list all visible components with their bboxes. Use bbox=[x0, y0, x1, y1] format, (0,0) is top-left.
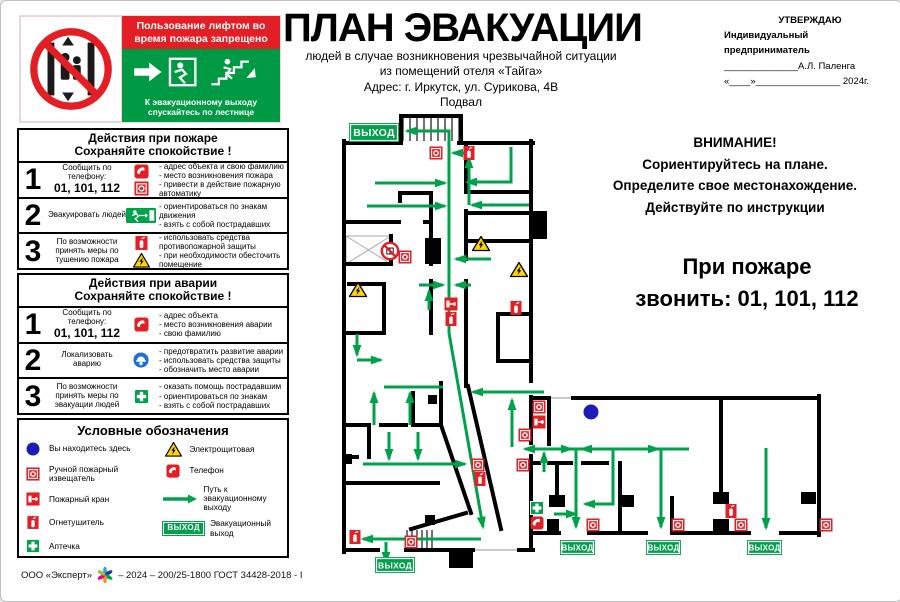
legend-label: Электрощитовая bbox=[189, 445, 254, 454]
step-label: По возможности принять меры по тушению п… bbox=[55, 237, 118, 264]
approve-signature: ______________А.Л. Паленга bbox=[724, 59, 896, 74]
exit-route-pictogram bbox=[126, 56, 276, 88]
legend-label: Телефон bbox=[189, 466, 223, 475]
you-are-here-icon bbox=[23, 442, 43, 456]
bullet: - ориентироваться по знакам движения bbox=[159, 202, 285, 220]
elevator-ban-text: Пользование лифтом во время пожара запре… bbox=[122, 16, 280, 49]
fire-hose-icon bbox=[533, 416, 546, 429]
bullet: - привести в действие пожарную автоматик… bbox=[159, 180, 285, 198]
no-elevator-sign: Пользование лифтом во время пожара запре… bbox=[19, 15, 281, 123]
svg-text:ВЫХОД: ВЫХОД bbox=[378, 561, 412, 571]
no-elevator-icon bbox=[382, 243, 398, 259]
legend-label: Пожарный кран bbox=[49, 495, 109, 504]
fire-alarm-icon bbox=[399, 251, 412, 264]
legend-item-you-are-here: Вы находитесь здесь bbox=[23, 442, 163, 456]
accident-step-3: 3 По возможности принять меры по эвакуац… bbox=[19, 379, 287, 413]
bullet: - место возникновения аварии bbox=[159, 320, 285, 329]
expert-logo-icon bbox=[97, 567, 113, 583]
bullet: - свою фамилию bbox=[159, 329, 285, 338]
exit-badge: ВЫХОД bbox=[560, 540, 595, 555]
accident-step-1: 1 Сообщить по телефону: 01, 101, 112 - а… bbox=[19, 308, 287, 344]
fire-alarm-icon bbox=[430, 147, 443, 160]
accident-panel-title: Действия при аварии bbox=[19, 277, 287, 290]
attention-line-2: Сориентируйтесь на плане. bbox=[579, 154, 891, 176]
attention-block: ВНИМАНИЕ! Сориентируйтесь на плане. Опре… bbox=[579, 132, 891, 218]
fire-alarm-icon bbox=[405, 536, 418, 549]
first-aid-icon bbox=[531, 502, 544, 515]
step-label: По возможности принять меры по эвакуации… bbox=[55, 382, 119, 409]
legend-item-route: Путь к эвакуационному выходу bbox=[163, 485, 283, 512]
step-number: 1 bbox=[19, 166, 47, 193]
fire-alarm-icon bbox=[134, 181, 149, 196]
electric-warning-icon bbox=[163, 442, 183, 457]
approve-date: «____»________________ 2024г. bbox=[724, 74, 896, 89]
bullet: - при необходимости обесточить помещение bbox=[159, 251, 285, 269]
step-label: Сообщить по телефону: bbox=[62, 163, 111, 181]
extinguisher-icon bbox=[475, 472, 486, 486]
phone-icon bbox=[163, 464, 183, 478]
legend-item-first-aid: Аптечка bbox=[23, 539, 163, 553]
bullet: - использовать средства противопожарной … bbox=[159, 233, 285, 251]
fire-hose-icon bbox=[23, 492, 43, 506]
step-label: Локализовать аварию bbox=[61, 350, 112, 368]
bullet: - взять с собой пострадавших bbox=[159, 220, 285, 229]
extinguisher-icon bbox=[350, 530, 361, 544]
bullet: - оказать помощь пострадавшим bbox=[159, 382, 285, 391]
legend-title: Условные обозначения bbox=[19, 420, 287, 440]
subtitle-line-3: Адрес: г. Иркутск, ул. Сурикова, 4В bbox=[283, 80, 639, 95]
legend-label: Путь к эвакуационному выходу bbox=[203, 485, 283, 512]
exit-sign-text: К эвакуационному выходу спускайтесь по л… bbox=[122, 96, 280, 122]
fire-hose-icon bbox=[445, 298, 458, 311]
legend-label: Ручной пожарный извещатель bbox=[49, 465, 163, 483]
protective-gear-icon bbox=[133, 352, 149, 368]
extinguisher-icon bbox=[726, 504, 737, 518]
fire-alarm-icon bbox=[519, 429, 532, 442]
extinguisher-icon bbox=[511, 301, 522, 315]
bullet: - адрес объекта bbox=[159, 311, 285, 320]
legend-label: Эвакуационный выход bbox=[210, 519, 283, 537]
svg-text:ВЫХОД: ВЫХОД bbox=[647, 544, 679, 553]
fire-alarm-icon bbox=[23, 467, 43, 481]
exit-badge: ВЫХОД bbox=[747, 540, 782, 555]
exit-badge: ВЫХОД bbox=[646, 540, 681, 555]
legend-item-electric: Электрощитовая bbox=[163, 442, 283, 457]
svg-text:ВЫХОД: ВЫХОД bbox=[353, 127, 395, 139]
extinguisher-icon bbox=[135, 235, 148, 251]
extinguisher-icon bbox=[23, 515, 43, 530]
fire-alarm-icon bbox=[672, 519, 685, 532]
subtitle-line-1: людей в случае возникновения чрезвычайно… bbox=[283, 49, 639, 64]
step-number: 2 bbox=[19, 347, 47, 374]
fire-step-1: 1 Сообщить по телефону: 01, 101, 112 - а… bbox=[19, 163, 287, 199]
legend-label: Вы находитесь здесь bbox=[49, 444, 131, 453]
svg-text:ВЫХОД: ВЫХОД bbox=[748, 544, 780, 553]
bullet: - место возникновения пожара bbox=[159, 171, 285, 180]
legend-label: Аптечка bbox=[49, 542, 80, 551]
attention-line-1: ВНИМАНИЕ! bbox=[579, 132, 891, 154]
bullet: - использовать средства защиты bbox=[159, 356, 285, 365]
accident-panel-subtitle: Сохраняйте спокойствие ! bbox=[19, 290, 287, 303]
step-number: 3 bbox=[19, 383, 47, 410]
evacuation-plan-page: Пользование лифтом во время пожара запре… bbox=[0, 0, 900, 602]
bullet: - адрес объекта и свою фамилию bbox=[159, 162, 285, 171]
step-number: 1 bbox=[19, 311, 47, 338]
fire-alarm-icon bbox=[820, 519, 833, 532]
subtitle-line-2: из помещений отеля «Тайга» bbox=[283, 64, 639, 79]
legend-item-exit: ВЫХОД Эвакуационный выход bbox=[163, 519, 283, 537]
attention-line-3: Определите свое местонахождение. bbox=[579, 175, 891, 197]
accident-actions-panel: Действия при аварии Сохраняйте спокойств… bbox=[17, 273, 289, 415]
bullet: - взять с собой пострадавших bbox=[159, 401, 285, 410]
electric-warning-icon bbox=[473, 237, 490, 251]
fire-actions-panel: Действия при пожаре Сохраняйте спокойств… bbox=[17, 128, 289, 270]
legend-panel: Условные обозначения Вы находитесь здесь… bbox=[17, 418, 289, 558]
legend-item-fire-hose: Пожарный кран bbox=[23, 492, 163, 506]
phone-icon bbox=[134, 164, 149, 179]
approve-title: УТВЕРЖДАЮ bbox=[724, 13, 896, 28]
legend-item-extinguisher: Огнетушитель bbox=[23, 515, 163, 530]
fire-step-2: 2 Эвакуировать людей - ориентироваться п… bbox=[19, 199, 287, 235]
approval-block: УТВЕРЖДАЮ Индивидуальный предприниматель… bbox=[724, 13, 896, 89]
emergency-numbers: 01, 101, 112 bbox=[47, 182, 127, 195]
fire-alarm-icon bbox=[472, 459, 485, 472]
step-label: Эвакуировать людей bbox=[48, 210, 126, 219]
footer: ООО «Эксперт» – 2024 – 200/25-1800 ГОСТ … bbox=[21, 567, 302, 583]
fire-alarm-icon bbox=[533, 401, 546, 414]
legend-item-phone: Телефон bbox=[163, 464, 283, 478]
elevator-prohibition-pictogram bbox=[20, 16, 122, 122]
legend-label: Огнетушитель bbox=[49, 518, 104, 527]
exit-man-icon bbox=[126, 208, 156, 223]
title-block: ПЛАН ЭВАКУАЦИИ людей в случае возникнове… bbox=[283, 7, 639, 110]
fire-alarm-icon bbox=[517, 459, 530, 472]
bullet: - ориентироваться по знакам bbox=[159, 392, 285, 401]
footer-code: – 2024 – 200/25-1800 ГОСТ 34428-2018 - I bbox=[118, 570, 302, 581]
fire-alarm-icon bbox=[735, 519, 748, 532]
exit-badge: ВЫХОД bbox=[349, 123, 399, 142]
electric-warning-icon bbox=[511, 263, 528, 277]
page-title: ПЛАН ЭВАКУАЦИИ bbox=[283, 7, 639, 49]
you-are-here-icon bbox=[584, 405, 599, 420]
approve-entity: Индивидуальный предприниматель bbox=[724, 28, 896, 58]
phone-icon bbox=[134, 317, 149, 332]
bullet: - предотвратить развитие аварии bbox=[159, 347, 285, 356]
footer-org: ООО «Эксперт» bbox=[21, 570, 92, 581]
route-arrow-icon bbox=[163, 494, 197, 504]
bullet: - обозначить место аварии bbox=[159, 365, 285, 374]
exit-badge: ВЫХОД bbox=[375, 557, 415, 573]
electric-warning-icon bbox=[133, 253, 150, 268]
step-number: 2 bbox=[19, 202, 47, 229]
call-line-1: При пожаре bbox=[613, 251, 881, 283]
first-aid-icon bbox=[134, 389, 149, 404]
extinguisher-icon bbox=[464, 146, 475, 160]
attention-line-4: Действуйте по инструкции bbox=[579, 197, 891, 219]
fire-panel-subtitle: Сохраняйте спокойствие ! bbox=[19, 145, 287, 158]
first-aid-icon bbox=[23, 539, 43, 553]
accident-step-2: 2 Локализовать аварию - предотвратить ра… bbox=[19, 344, 287, 380]
fire-step-3: 3 По возможности принять меры по тушению… bbox=[19, 234, 287, 268]
legend-item-fire-alarm: Ручной пожарный извещатель bbox=[23, 465, 163, 483]
exit-badge-icon: ВЫХОД bbox=[163, 522, 204, 535]
call-line-2: звонить: 01, 101, 112 bbox=[613, 283, 881, 315]
fire-alarm-icon bbox=[587, 519, 600, 532]
fire-panel-title: Действия при пожаре bbox=[19, 132, 287, 145]
emergency-call-block: При пожаре звонить: 01, 101, 112 bbox=[613, 251, 881, 315]
step-label: Сообщить по телефону: bbox=[62, 308, 111, 326]
step-number: 3 bbox=[19, 238, 47, 265]
extinguisher-icon bbox=[446, 312, 457, 326]
emergency-numbers: 01, 101, 112 bbox=[47, 327, 127, 340]
phone-icon bbox=[531, 517, 544, 530]
no-elevator-icon bbox=[27, 25, 115, 113]
svg-text:ВЫХОД: ВЫХОД bbox=[561, 544, 593, 553]
